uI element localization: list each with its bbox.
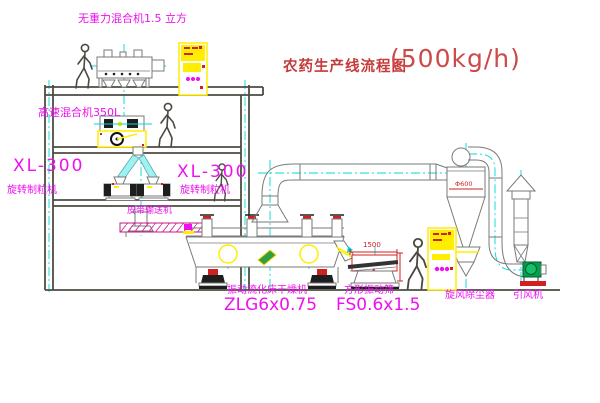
gravity-free-mixer bbox=[90, 50, 166, 87]
label-screen-model: FS0.6x1.5 bbox=[336, 297, 420, 314]
label-granulator-left-model: XL-300 bbox=[13, 158, 84, 175]
label-granulator-right-model: XL-300 bbox=[177, 164, 248, 181]
label-gravity-mixer: 无重力混合机1.5 立方 bbox=[78, 13, 187, 24]
label-belt-conveyor: 皮带输送机 bbox=[127, 207, 172, 216]
person-second-floor bbox=[159, 103, 175, 147]
dryer-inlet-ports bbox=[200, 215, 344, 237]
flow-diagram-canvas: 农药生产线流程图 (500kg/h) 无重力混合机1.5 立方 高速混合机350… bbox=[0, 0, 600, 403]
label-granulator-right-name: 旋转制粒机 bbox=[180, 186, 230, 196]
label-cyclone: 旋风除尘器 bbox=[445, 291, 495, 301]
control-cabinet-bottom bbox=[428, 228, 456, 290]
granulator-left bbox=[104, 177, 137, 201]
granulator-right bbox=[137, 177, 170, 201]
label-granulator-left-name: 旋转制粒机 bbox=[7, 186, 57, 196]
label-fan: 引风机 bbox=[513, 291, 543, 301]
discharge-chute bbox=[118, 147, 157, 180]
diagram-capacity: (500kg/h) bbox=[390, 44, 521, 73]
induced-draft-fan bbox=[520, 262, 546, 286]
person-roof bbox=[76, 44, 92, 88]
person-ground bbox=[408, 239, 426, 289]
fluid-bed-dryer bbox=[183, 215, 355, 289]
diagram-title: 农药生产线流程图 bbox=[283, 55, 407, 76]
dimension-screen-length: 1500 bbox=[363, 242, 381, 249]
label-dryer-model: ZLG6x0.75 bbox=[224, 297, 317, 314]
control-cabinet-top bbox=[179, 43, 207, 95]
exhaust-stack bbox=[507, 175, 535, 262]
high-speed-mixer bbox=[94, 116, 152, 147]
dimension-cyclone-diameter: Φ600 bbox=[455, 181, 473, 188]
belt-conveyor bbox=[120, 223, 212, 237]
vibrating-screen bbox=[348, 249, 403, 289]
label-high-speed-mixer: 高速混合机350L bbox=[38, 107, 120, 118]
